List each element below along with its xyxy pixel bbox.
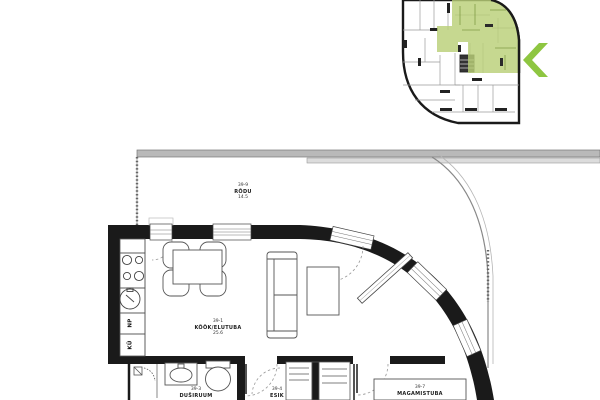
wardrobes [286,362,350,400]
hallway-label: 39-4 ESIK [270,387,284,399]
bedroom-label: 39-7 MAGAMISTUBA [397,385,443,397]
room-name: ESIK [270,393,284,399]
dining-table [173,250,222,284]
sofa [267,252,297,338]
room-name: MAGAMISTUBA [397,391,443,397]
chevron-left-icon[interactable] [523,43,548,77]
washbasin-icon [165,363,197,385]
room-number: 39-4 [270,387,284,393]
coffee-table [307,267,339,315]
floor-plan-page: 39-9 RÕDU 14.5 39-1 KÖÖK/ELUTUBA 25.6 39… [0,0,600,400]
balcony-label: 39-9 RÕDU 14.5 [234,183,252,200]
room-area: 14.5 [234,195,252,201]
floor-plan-drawing [0,0,600,400]
balcony-door-leaf [357,253,412,304]
room-area: 25.6 [194,331,241,337]
room-name: KÖÖK/ELUTUBA [194,325,241,331]
kitchen-living-label: 39-1 KÖÖK/ELUTUBA 25.6 [194,319,241,336]
stove-icon [122,255,143,280]
dining-set [163,242,226,296]
dishwasher-label: NP [128,318,134,327]
room-name: DUŠIRUUM [179,393,212,399]
shower-icon [134,364,157,398]
room-name: RÕDU [234,189,252,195]
shower-room-label: 39-3 DUŠIRUUM [179,387,212,399]
fridge-label: KÜ [128,340,134,349]
overview-plan [403,0,519,123]
sink-icon [120,288,140,309]
